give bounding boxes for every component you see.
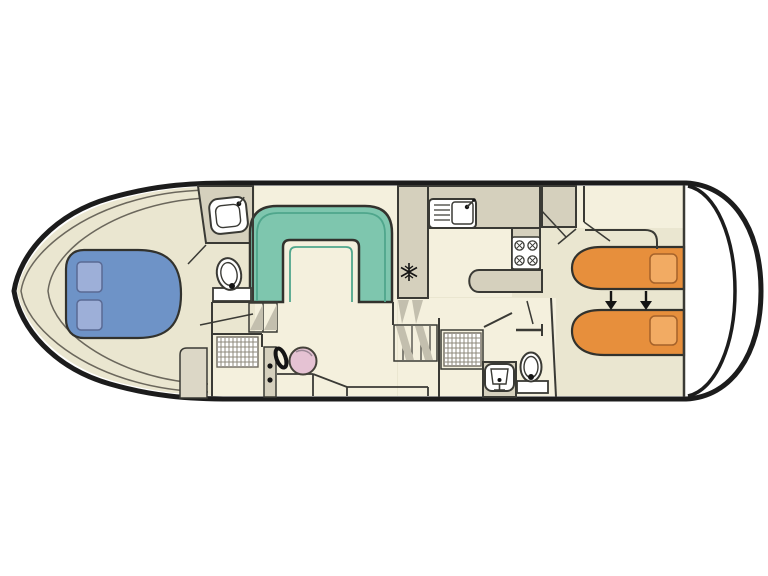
drain-dot: [498, 378, 502, 382]
bow-entry-panel: [180, 348, 207, 398]
toilet-base: [517, 381, 548, 393]
galley-peninsula-counter: [469, 270, 542, 292]
console-knob: [267, 377, 272, 382]
helm-seat: [290, 348, 317, 375]
aft-washbasin: [485, 364, 514, 391]
wardrobe: [542, 186, 576, 227]
pillow-icon: [77, 262, 102, 292]
faucet-knob: [472, 198, 476, 202]
stove: [512, 237, 540, 269]
toilet-flush-dot: [528, 374, 534, 380]
floor-aft-corridor-top: [577, 186, 684, 228]
forward-washbasin: [208, 196, 248, 235]
grate-grid-lines: [218, 338, 257, 366]
washbasin-icon: [208, 196, 248, 235]
console-knob: [267, 363, 272, 368]
pillow-icon: [77, 300, 102, 330]
toilet-flush-dot: [229, 283, 235, 289]
pillow-icon: [650, 254, 677, 283]
galley-fridge-column: [398, 186, 428, 298]
boat-floor-plan: Houseboat deck floor plan: [0, 0, 768, 576]
pillow-icon: [650, 316, 677, 345]
floor-plan-canvas: Houseboat deck floor plan: [0, 0, 768, 576]
kitchen-sink: [429, 198, 476, 228]
